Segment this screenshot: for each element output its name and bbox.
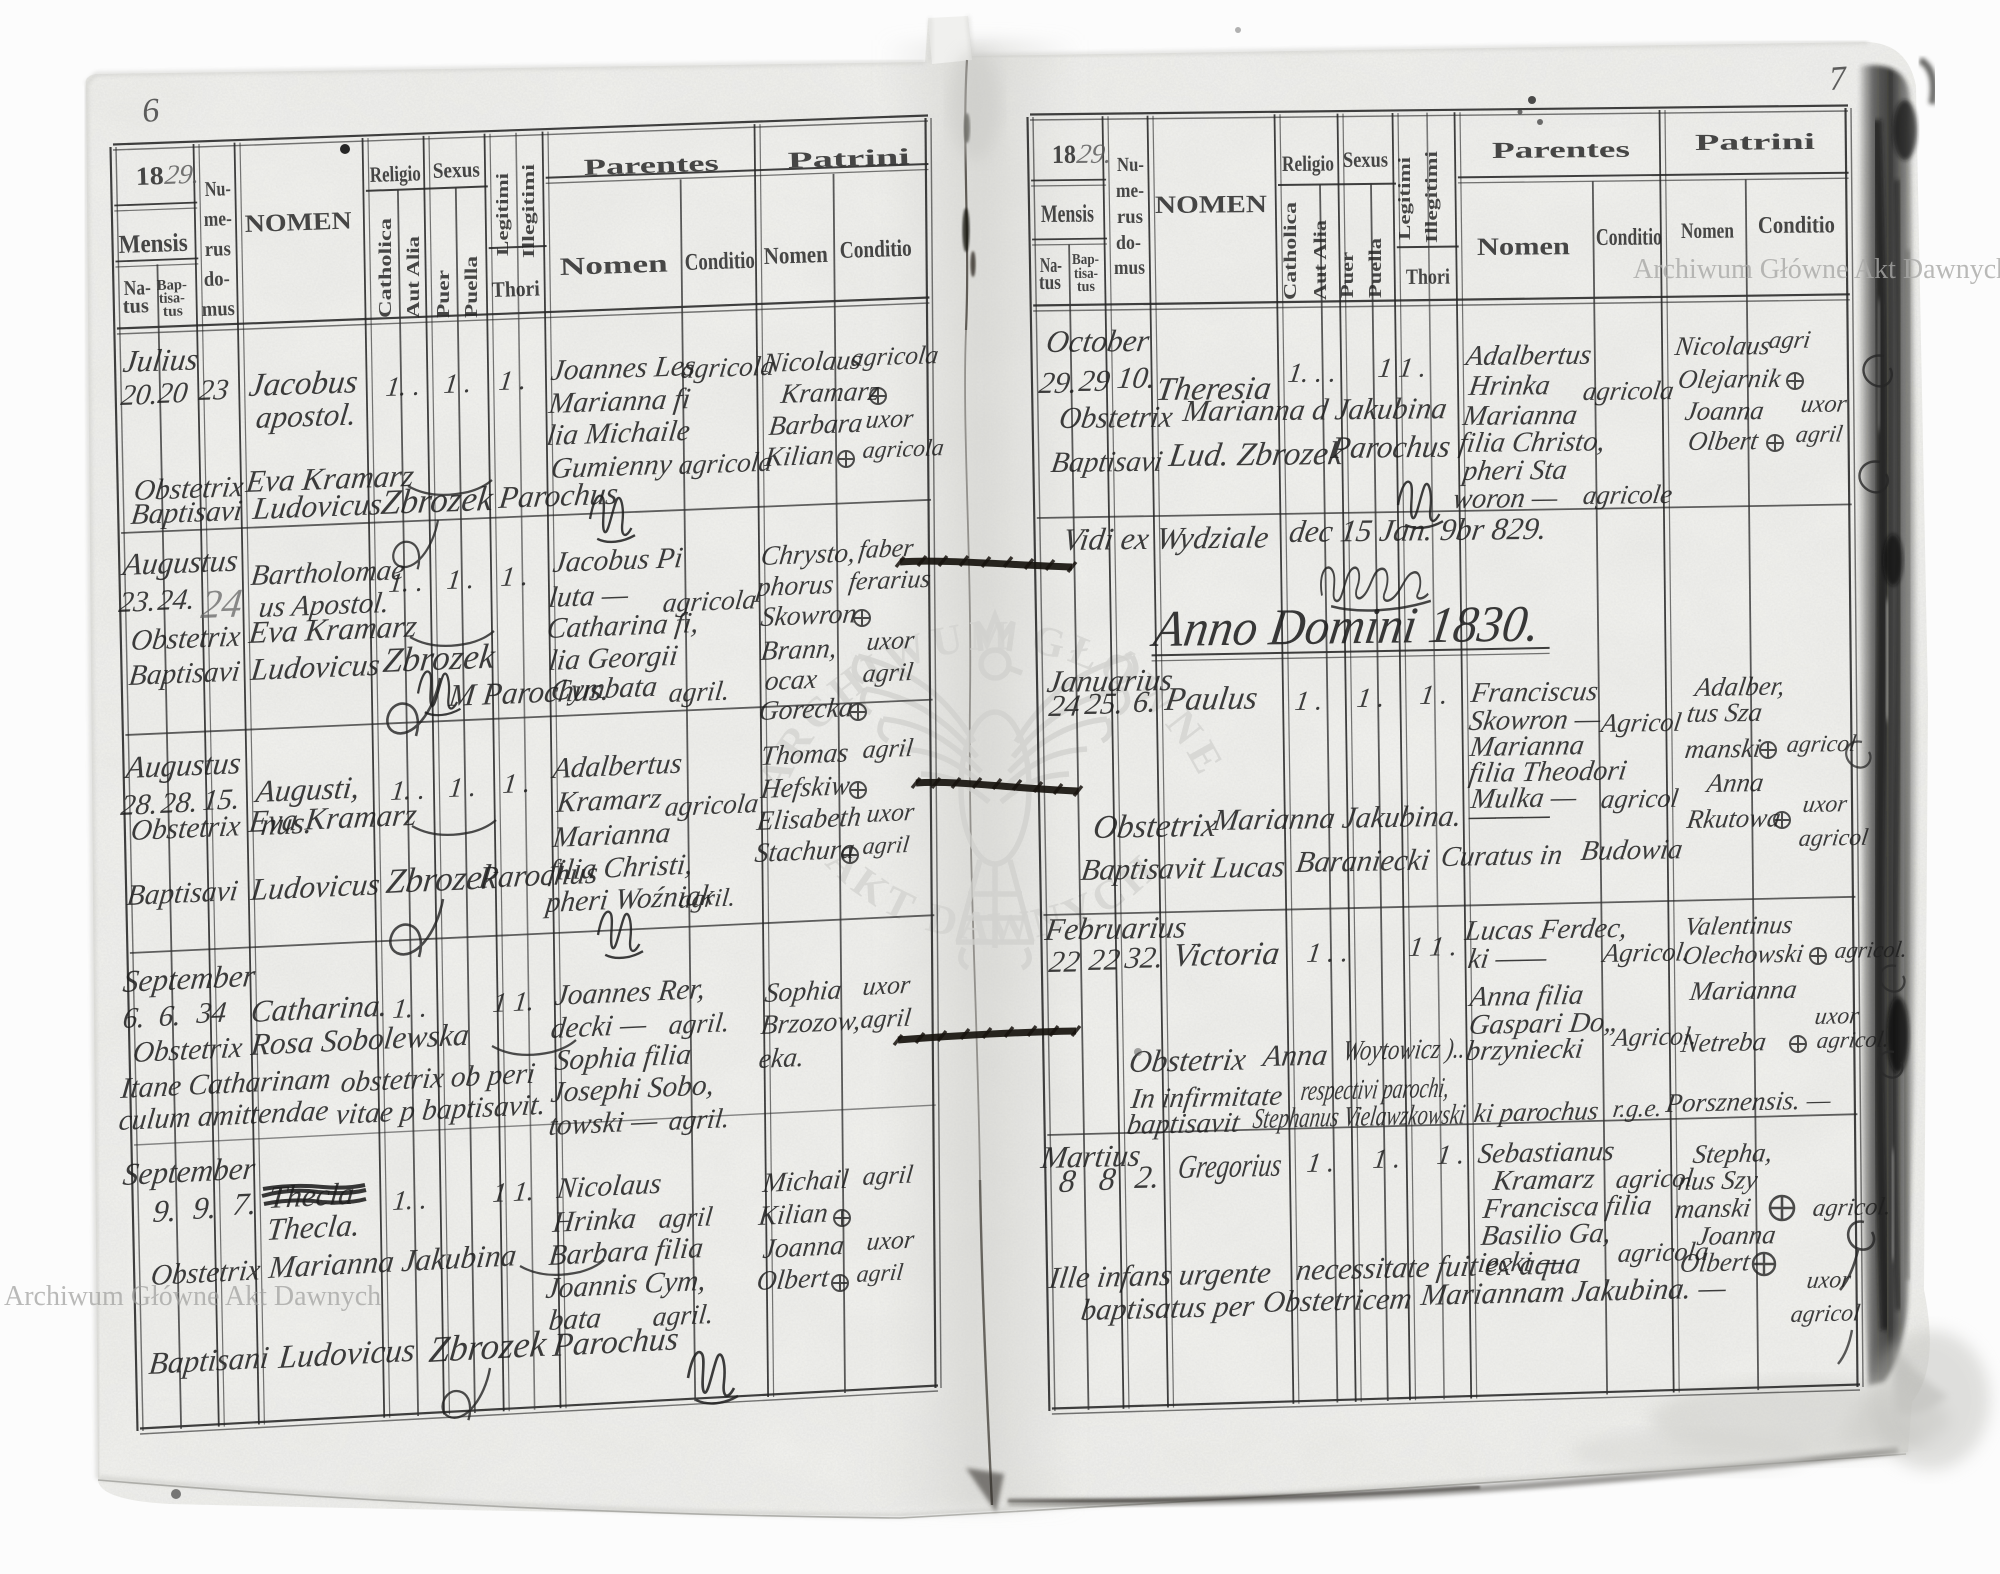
svg-text:Porsznensis. —: Porsznensis. — bbox=[1663, 1084, 1834, 1118]
svg-text:Brzozow,: Brzozow, bbox=[759, 1005, 862, 1041]
svg-text:Sophia: Sophia bbox=[763, 974, 843, 1009]
svg-text:1 .: 1 . bbox=[497, 365, 528, 397]
svg-text:Conditio: Conditio bbox=[839, 236, 912, 264]
svg-text:Anna: Anna bbox=[1703, 767, 1766, 798]
svg-text:Valentinus: Valentinus bbox=[1683, 910, 1794, 941]
svg-text:tus: tus bbox=[1039, 270, 1061, 294]
svg-text:Obstetrix: Obstetrix bbox=[1091, 807, 1220, 846]
svg-text:Nomen: Nomen bbox=[559, 250, 668, 281]
svg-text:Puella: Puella bbox=[1365, 238, 1385, 298]
svg-text:23.: 23. bbox=[117, 586, 158, 619]
svg-text:uxor: uxor bbox=[1813, 1003, 1861, 1030]
svg-text:ferarius: ferarius bbox=[847, 564, 932, 596]
svg-text:Ludovicus: Ludovicus bbox=[276, 1332, 417, 1376]
svg-text:1 1 .: 1 1 . bbox=[1376, 353, 1429, 384]
svg-text:25.: 25. bbox=[1083, 687, 1126, 721]
svg-text:NOMEN: NOMEN bbox=[244, 207, 352, 238]
svg-text:do-: do- bbox=[1116, 232, 1141, 254]
svg-text:Sexus: Sexus bbox=[1343, 147, 1389, 172]
svg-text:Gorecka: Gorecka bbox=[757, 692, 855, 727]
svg-text:1 . .: 1 . . bbox=[1305, 937, 1351, 969]
svg-text:6: 6 bbox=[141, 92, 161, 130]
svg-text:7.: 7. bbox=[231, 1186, 258, 1222]
svg-text:Budowia: Budowia bbox=[1579, 833, 1685, 867]
svg-text:Obstetricem: Obstetricem bbox=[1261, 1281, 1414, 1319]
svg-text:agricola: agricola bbox=[861, 435, 945, 464]
svg-text:Baptisavi: Baptisavi bbox=[125, 875, 240, 912]
svg-text:Obstetrix: Obstetrix bbox=[1057, 400, 1175, 435]
svg-text:Obstetrix: Obstetrix bbox=[1127, 1042, 1248, 1079]
svg-text:October: October bbox=[1044, 323, 1152, 359]
svg-text:agril.: agril. bbox=[667, 1103, 731, 1137]
svg-text:Adalbertus: Adalbertus bbox=[549, 748, 684, 785]
svg-text:18: 18 bbox=[135, 161, 164, 191]
svg-text:Obstetrix: Obstetrix bbox=[129, 810, 242, 847]
svg-text:Baptisavi: Baptisavi bbox=[127, 656, 242, 692]
svg-text:1 .: 1 . bbox=[1355, 683, 1387, 714]
svg-text:Adalbertus: Adalbertus bbox=[1462, 339, 1594, 372]
svg-text:Mensis: Mensis bbox=[118, 228, 188, 259]
svg-text:1 .: 1 . bbox=[1371, 1143, 1403, 1175]
svg-text:22: 22 bbox=[1047, 945, 1082, 979]
svg-text:baptisavit: baptisavit bbox=[1125, 1107, 1243, 1141]
svg-text:1 .: 1 . bbox=[1305, 1147, 1337, 1179]
svg-text:Aut Alia: Aut Alia bbox=[1310, 220, 1330, 300]
svg-text:agricola: agricola bbox=[663, 788, 760, 823]
svg-text:Olejarnik: Olejarnik bbox=[1676, 363, 1784, 394]
svg-text:9.: 9. bbox=[151, 1193, 178, 1229]
svg-text:1 1.: 1 1. bbox=[491, 1176, 536, 1209]
svg-text:1 1.: 1 1. bbox=[491, 986, 536, 1019]
svg-text:Nicolaus: Nicolaus bbox=[760, 345, 863, 379]
svg-text:Paulus: Paulus bbox=[1162, 680, 1260, 718]
svg-text:lia Michaile: lia Michaile bbox=[545, 415, 692, 452]
svg-text:ocax: ocax bbox=[763, 664, 819, 697]
svg-text:Nomen: Nomen bbox=[1681, 218, 1734, 243]
svg-text:M Parochus.: M Parochus. bbox=[446, 672, 611, 713]
svg-text:Aut Alia: Aut Alia bbox=[403, 236, 423, 318]
svg-text:uxor: uxor bbox=[861, 970, 912, 1001]
svg-text:agricol: agricol bbox=[1599, 783, 1680, 814]
svg-text:ki parochus: ki parochus bbox=[1472, 1095, 1600, 1128]
svg-text:Hrinka: Hrinka bbox=[1466, 369, 1552, 402]
svg-text:Hrinka: Hrinka bbox=[550, 1203, 638, 1239]
svg-text:1. .: 1. . bbox=[387, 567, 425, 599]
svg-text:Olbert: Olbert bbox=[1686, 425, 1761, 456]
svg-text:Thecla.: Thecla. bbox=[265, 1207, 362, 1247]
svg-text:Patrini: Patrini bbox=[1695, 129, 1816, 155]
svg-text:29.: 29. bbox=[1037, 366, 1080, 400]
svg-text:Marianna: Marianna bbox=[550, 817, 672, 854]
svg-text:September: September bbox=[121, 1150, 257, 1192]
svg-text:Marianna Jakubina. ———: Marianna Jakubina. ——— bbox=[1210, 797, 1553, 837]
svg-text:Conditio: Conditio bbox=[684, 248, 755, 276]
svg-text:Joanna: Joanna bbox=[1683, 395, 1766, 426]
svg-text:Woytowicz )..: Woytowicz ).. bbox=[1341, 1033, 1467, 1067]
svg-text:agril.: agril. bbox=[667, 676, 731, 709]
svg-text:uxor: uxor bbox=[865, 797, 916, 828]
svg-text:Olbert: Olbert bbox=[755, 1262, 832, 1297]
svg-text:Februarius: Februarius bbox=[1042, 909, 1189, 947]
svg-text:apostol.: apostol. bbox=[254, 397, 358, 435]
svg-text:22: 22 bbox=[1087, 943, 1122, 977]
svg-text:Netreba: Netreba bbox=[1678, 1026, 1768, 1058]
svg-text:Victoria: Victoria bbox=[1171, 935, 1282, 974]
svg-text:Kramarz: Kramarz bbox=[778, 376, 881, 410]
svg-text:Thomas: Thomas bbox=[759, 737, 850, 772]
svg-text:1 .: 1 . bbox=[445, 564, 476, 596]
svg-text:Lud. Zbrozek: Lud. Zbrozek bbox=[1166, 435, 1347, 474]
svg-text:agril: agril bbox=[861, 657, 915, 688]
svg-text:agril: agril bbox=[855, 1260, 904, 1288]
svg-text:Agricol.: Agricol. bbox=[1599, 936, 1692, 968]
svg-text:Anno Domini 1830.: Anno Domini 1830. bbox=[1147, 596, 1543, 658]
svg-text:rus: rus bbox=[1117, 206, 1143, 228]
svg-text:Sexus: Sexus bbox=[432, 156, 480, 183]
svg-text:Parentes: Parentes bbox=[1492, 137, 1630, 163]
svg-text:Brann,: Brann, bbox=[759, 633, 838, 667]
svg-text:Catholica: Catholica bbox=[1280, 202, 1300, 300]
svg-text:Nu-: Nu- bbox=[1117, 154, 1144, 176]
svg-text:Jacobus Pi: Jacobus Pi bbox=[551, 542, 685, 579]
svg-text:agricol: agricol bbox=[1797, 825, 1870, 852]
svg-text:Curatus in: Curatus in bbox=[1439, 839, 1565, 873]
svg-text:Patrini: Patrini bbox=[787, 144, 911, 173]
svg-text:Marianna: Marianna bbox=[1687, 974, 1799, 1006]
svg-text:Thori: Thori bbox=[491, 275, 540, 302]
svg-text:Julius: Julius bbox=[121, 341, 200, 378]
svg-text:Parochus: Parochus bbox=[550, 1320, 680, 1364]
svg-text:manski: manski bbox=[1683, 733, 1763, 764]
svg-text:Baraniecki: Baraniecki bbox=[1294, 843, 1432, 879]
svg-text:Gregorius: Gregorius bbox=[1176, 1147, 1284, 1186]
svg-text:Archiwum Główne Akt Dawnych: Archiwum Główne Akt Dawnych bbox=[1633, 254, 2000, 285]
svg-text:Conditio: Conditio bbox=[1758, 212, 1835, 239]
svg-text:1. . .: 1. . . bbox=[1286, 358, 1339, 389]
svg-text:1. .: 1. . bbox=[384, 371, 422, 403]
svg-text:20.: 20. bbox=[119, 379, 160, 412]
svg-text:tus: tus bbox=[122, 293, 149, 318]
svg-text:brzyniecki: brzyniecki bbox=[1464, 1033, 1585, 1067]
svg-text:rus: rus bbox=[204, 236, 231, 261]
svg-text:Kilian: Kilian bbox=[762, 440, 836, 473]
svg-text:do-: do- bbox=[203, 266, 230, 291]
svg-text:agricola: agricola bbox=[1581, 375, 1676, 406]
svg-text:uxor: uxor bbox=[864, 403, 916, 434]
svg-text:Michail: Michail bbox=[760, 1164, 850, 1199]
svg-text:tus: tus bbox=[1077, 279, 1095, 295]
svg-text:agricol.: agricol. bbox=[1811, 1193, 1892, 1222]
svg-text:Augustus: Augustus bbox=[122, 745, 243, 785]
svg-text:1 .: 1 . bbox=[442, 368, 473, 400]
svg-text:Obstetrix: Obstetrix bbox=[129, 621, 242, 657]
svg-text:Baptisavi: Baptisavi bbox=[1049, 446, 1165, 479]
svg-text:Nicolaus: Nicolaus bbox=[554, 1168, 663, 1205]
svg-text:agril: agril bbox=[861, 733, 914, 764]
svg-text:baptisatus per: baptisatus per bbox=[1079, 1289, 1257, 1327]
svg-text:agril: agril bbox=[1794, 422, 1845, 448]
svg-text:Joannes Les: Joannes Les bbox=[549, 350, 697, 387]
svg-text:Parochus: Parochus bbox=[1328, 429, 1453, 465]
svg-text:September: September bbox=[121, 958, 258, 999]
svg-text:tus Sza: tus Sza bbox=[1685, 697, 1764, 728]
svg-text:Kilian: Kilian bbox=[756, 1198, 829, 1233]
svg-text:agricola: agricola bbox=[677, 447, 774, 481]
svg-text:24.: 24. bbox=[156, 584, 197, 617]
svg-text:Baptisavi: Baptisavi bbox=[129, 495, 244, 531]
svg-text:dec 15 Jan. 9br 829.: dec 15 Jan. 9br 829. bbox=[1287, 511, 1549, 549]
svg-text:23: 23 bbox=[197, 374, 230, 407]
svg-text:Vidi ex Wydziale: Vidi ex Wydziale bbox=[1061, 520, 1271, 557]
svg-text:Thori: Thori bbox=[1406, 264, 1450, 289]
svg-text:Catholica: Catholica bbox=[375, 218, 395, 318]
svg-text:Zbrozek: Zbrozek bbox=[381, 637, 498, 680]
svg-text:Legitimi: Legitimi bbox=[493, 173, 512, 256]
svg-text:nus Szy: nus Szy bbox=[1676, 1164, 1759, 1196]
svg-text:Stachura: Stachura bbox=[753, 834, 856, 869]
svg-text:luta —: luta — bbox=[547, 579, 631, 614]
svg-text:Puer: Puer bbox=[433, 270, 453, 318]
svg-text:Parochus: Parochus bbox=[476, 855, 600, 895]
svg-text:Martius: Martius bbox=[1038, 1138, 1143, 1175]
svg-text:Puella: Puella bbox=[461, 256, 481, 318]
svg-text:Zbrozek: Zbrozek bbox=[379, 479, 496, 522]
svg-text:1 .: 1 . bbox=[501, 768, 532, 800]
svg-text:18: 18 bbox=[1052, 140, 1076, 169]
svg-text:Religio: Religio bbox=[1282, 151, 1334, 176]
svg-text:ki ——: ki —— bbox=[1466, 942, 1549, 975]
svg-text:agricol.: agricol. bbox=[1815, 1027, 1891, 1054]
svg-text:Elisabeth: Elisabeth bbox=[754, 802, 863, 837]
svg-text:24: 24 bbox=[1047, 689, 1082, 723]
svg-text:agricole: agricole bbox=[1581, 479, 1674, 510]
svg-text:10.: 10. bbox=[1115, 361, 1158, 395]
svg-text:phorus: phorus bbox=[753, 569, 835, 603]
svg-text:Hefskiw: Hefskiw bbox=[758, 770, 852, 805]
svg-text:uxor: uxor bbox=[865, 1225, 916, 1256]
svg-text:agril.: agril. bbox=[677, 883, 737, 914]
svg-text:agril: agril bbox=[861, 832, 911, 860]
svg-text:uxor: uxor bbox=[1799, 391, 1849, 418]
svg-text:Ludovicus: Ludovicus bbox=[250, 486, 384, 526]
svg-text:Joanna: Joanna bbox=[761, 1230, 845, 1265]
svg-text:Rkutowa: Rkutowa bbox=[1684, 802, 1783, 834]
svg-text:1 .: 1 . bbox=[1418, 680, 1450, 711]
svg-text:agricol.: agricol. bbox=[1833, 937, 1909, 964]
svg-text:29.: 29. bbox=[163, 159, 201, 191]
svg-text:Barbara: Barbara bbox=[767, 408, 864, 442]
svg-text:agril: agril bbox=[861, 1160, 914, 1191]
svg-text:Baptisani: Baptisani bbox=[147, 1340, 270, 1381]
svg-text:me-: me- bbox=[203, 206, 232, 231]
svg-text:Mensis: Mensis bbox=[1041, 201, 1094, 228]
svg-text:Archiwum Główne Akt Dawnych: Archiwum Główne Akt Dawnych bbox=[4, 1281, 381, 1312]
svg-text:Illegitimi: Illegitimi bbox=[519, 164, 538, 258]
svg-text:Anna: Anna bbox=[1259, 1038, 1330, 1073]
svg-text:agri: agri bbox=[1767, 327, 1812, 354]
svg-text:Augustus: Augustus bbox=[119, 543, 240, 582]
svg-text:r.g.e.: r.g.e. bbox=[1611, 1095, 1664, 1123]
svg-text:2.: 2. bbox=[1133, 1160, 1162, 1196]
svg-text:6.: 6. bbox=[121, 1002, 147, 1035]
svg-text:mus: mus bbox=[1114, 257, 1145, 279]
svg-text:Illegitimi: Illegitimi bbox=[1422, 151, 1441, 243]
svg-text:mus: mus bbox=[201, 296, 235, 321]
svg-text:32.: 32. bbox=[1122, 940, 1166, 975]
svg-text:towski —: towski — bbox=[547, 1105, 660, 1142]
svg-text:Eva Kramarz: Eva Kramarz bbox=[246, 797, 419, 839]
svg-text:Conditio: Conditio bbox=[1596, 224, 1662, 251]
svg-text:Parentes: Parentes bbox=[583, 151, 719, 180]
svg-text:1 .: 1 . bbox=[447, 772, 478, 804]
svg-text:Olechowski: Olechowski bbox=[1681, 939, 1805, 970]
svg-text:Stephanus Vielawzkowski: Stephanus Vielawzkowski bbox=[1251, 1098, 1467, 1135]
svg-text:34: 34 bbox=[194, 997, 228, 1030]
svg-text:Chrysto,: Chrysto, bbox=[759, 537, 857, 572]
svg-text:Ludovicus: Ludovicus bbox=[248, 866, 381, 907]
svg-text:29: 29 bbox=[1077, 364, 1112, 398]
svg-text:6.: 6. bbox=[157, 1000, 183, 1033]
svg-text:tus: tus bbox=[163, 303, 184, 320]
svg-text:Religio: Religio bbox=[369, 160, 421, 187]
svg-text:agril.: agril. bbox=[667, 1007, 731, 1041]
svg-text:Nomen: Nomen bbox=[763, 242, 828, 270]
svg-text:9.: 9. bbox=[191, 1190, 218, 1226]
svg-text:Marianna fi: Marianna fi bbox=[546, 383, 692, 420]
svg-text:29.: 29. bbox=[1075, 139, 1114, 170]
svg-text:Nicolaus: Nicolaus bbox=[1672, 330, 1772, 361]
svg-text:Ludovicus: Ludovicus bbox=[248, 647, 382, 687]
svg-text:Skowron: Skowron bbox=[759, 598, 858, 633]
svg-text:1. .: 1. . bbox=[391, 1184, 429, 1217]
svg-text:agricol: agricol bbox=[1789, 1300, 1862, 1328]
svg-text:20: 20 bbox=[156, 377, 190, 410]
svg-text:Marianna d Jakubina: Marianna d Jakubina bbox=[1180, 391, 1449, 428]
svg-text:Puer: Puer bbox=[1337, 252, 1357, 298]
svg-text:Legitimi: Legitimi bbox=[1395, 157, 1414, 240]
svg-text:Baptisavit Lucas: Baptisavit Lucas bbox=[1079, 849, 1287, 887]
svg-text:Zbrozek: Zbrozek bbox=[427, 1324, 549, 1371]
svg-text:uxor: uxor bbox=[1801, 791, 1849, 818]
svg-text:1 .: 1 . bbox=[1435, 1139, 1467, 1171]
svg-text:Nomen: Nomen bbox=[1477, 233, 1570, 261]
svg-text:eka.: eka. bbox=[757, 1042, 806, 1075]
svg-text:Nu-: Nu- bbox=[204, 176, 231, 201]
svg-text:Agricol: Agricol bbox=[1597, 707, 1683, 738]
svg-text:NOMEN: NOMEN bbox=[1155, 191, 1267, 219]
svg-text:agricola: agricola bbox=[849, 340, 940, 372]
svg-text:1 .: 1 . bbox=[499, 561, 530, 593]
svg-text:lia Georgii: lia Georgii bbox=[547, 640, 679, 677]
svg-text:agril: agril bbox=[859, 1003, 912, 1034]
svg-text:Obstetrix: Obstetrix bbox=[131, 1032, 244, 1069]
svg-text:decki —: decki — bbox=[549, 1009, 649, 1045]
svg-text:1 .: 1 . bbox=[1293, 686, 1325, 717]
svg-text:me-: me- bbox=[1116, 180, 1144, 202]
svg-text:agril: agril bbox=[657, 1201, 714, 1235]
svg-text:uxor: uxor bbox=[865, 625, 917, 656]
svg-text:1 1 .: 1 1 . bbox=[1407, 931, 1460, 963]
svg-text:Kramarz: Kramarz bbox=[554, 783, 664, 819]
